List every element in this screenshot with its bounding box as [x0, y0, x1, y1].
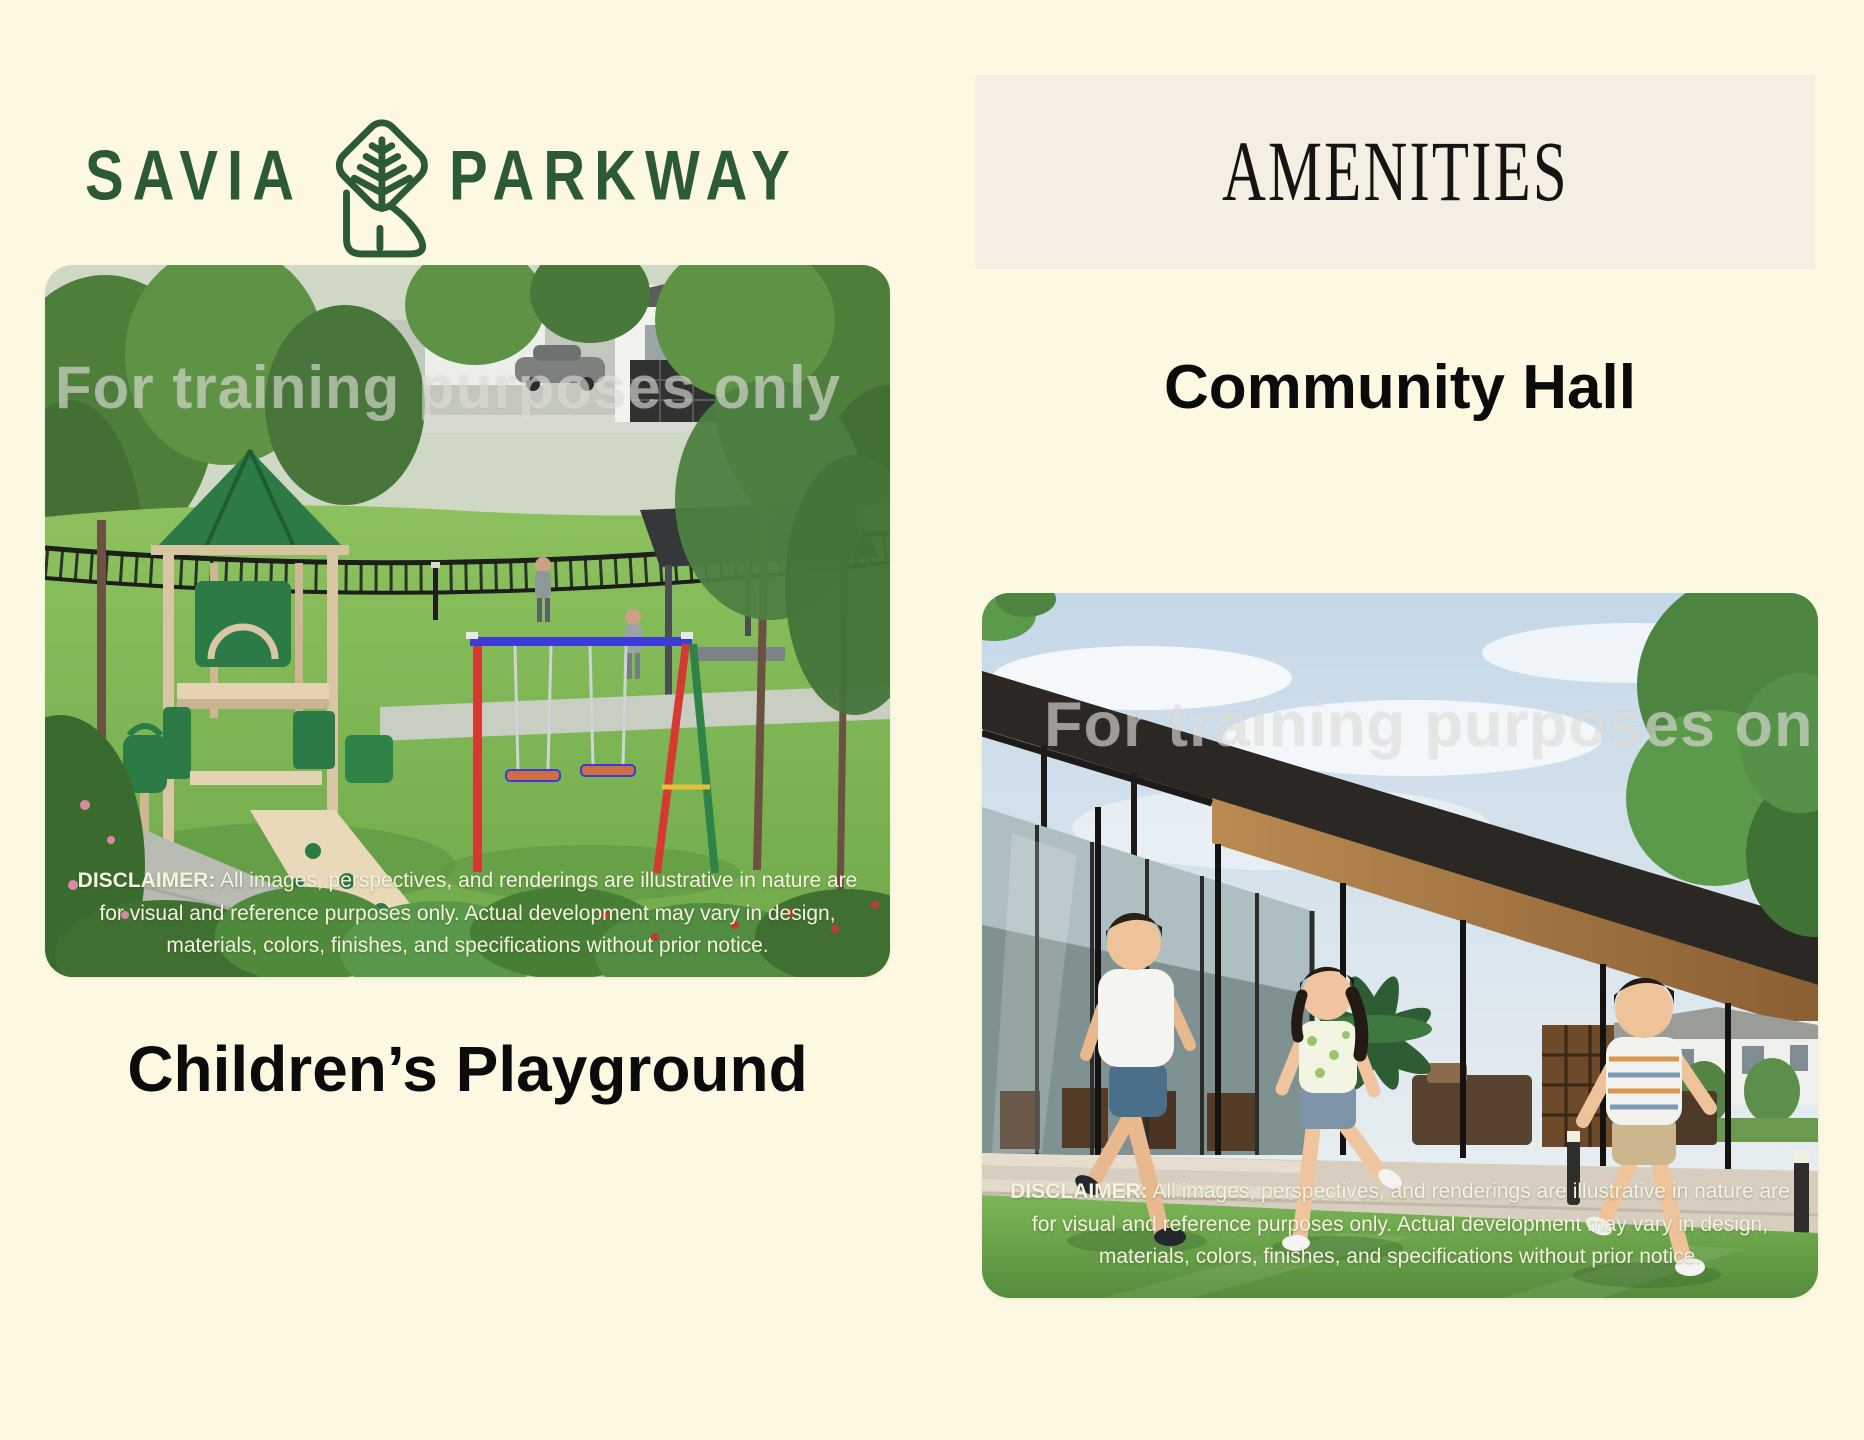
amenities-band: AMENITIES: [975, 75, 1815, 269]
brand-name-right: PARKWAY: [449, 134, 799, 216]
disclaimer-label: DISCLAIMER:: [78, 869, 216, 892]
playground-disclaimer: DISCLAIMER: All images, perspectives, an…: [70, 865, 864, 963]
brand-name-left: SAVIA: [85, 134, 303, 216]
amenities-title: AMENITIES: [1222, 123, 1569, 221]
disclaimer-label: DISCLAIMER:: [1010, 1180, 1148, 1203]
page-root: { "brand": { "name_left": "SAVIA", "name…: [0, 0, 1864, 1440]
community-hall-disclaimer: DISCLAIMER: All images, perspectives, an…: [1007, 1176, 1793, 1274]
watermark-text: For training purposes only: [55, 353, 841, 422]
community-hall-title: Community Hall: [982, 352, 1818, 423]
tree-icon: [317, 114, 435, 264]
children-playground-title: Children’s Playground: [45, 1032, 890, 1106]
community-hall-image: For training purposes only DISCLAIMER: A…: [982, 593, 1818, 1298]
brand-logo: SAVIA PARKWAY: [85, 100, 799, 250]
watermark-text: For training purposes only: [1044, 689, 1818, 761]
children-playground-image: For training purposes only DISCLAIMER: A…: [45, 265, 890, 977]
